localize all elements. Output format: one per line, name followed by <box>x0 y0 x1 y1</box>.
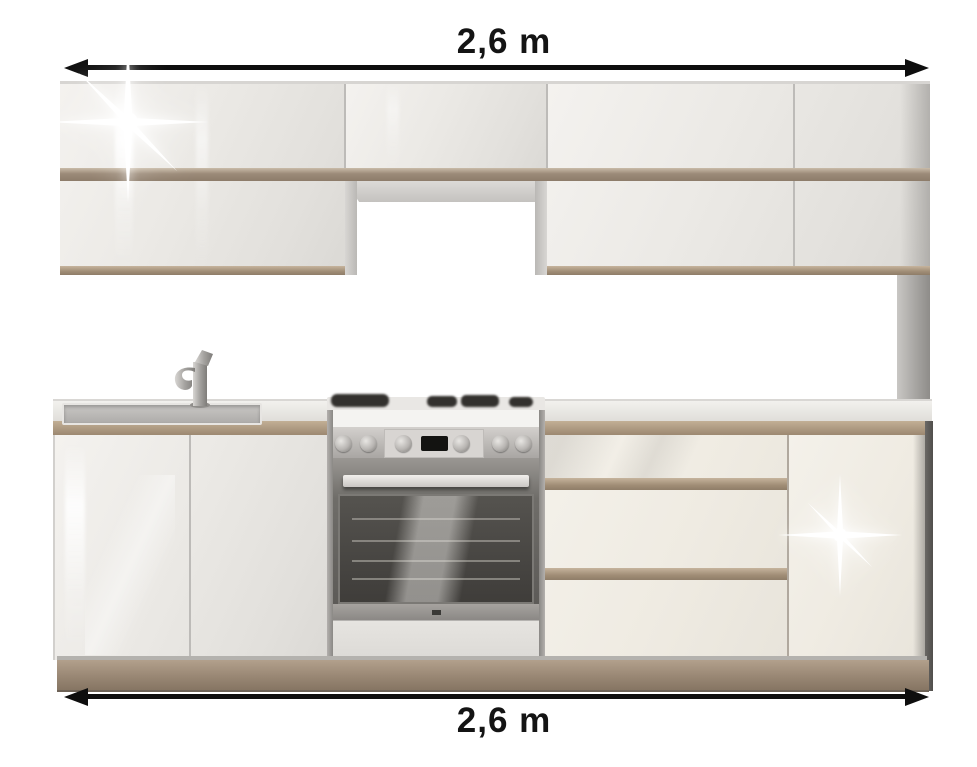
door-gap <box>344 84 346 168</box>
door-gap <box>189 435 191 660</box>
hob-burner-grate <box>509 397 533 407</box>
gloss-reflection <box>387 84 399 168</box>
cooker-top-trim <box>327 410 545 428</box>
brand-logo <box>432 610 441 615</box>
hood-niche-underside <box>345 181 547 202</box>
product-image: 2,6 m <box>0 0 977 767</box>
control-knob <box>395 435 412 452</box>
oven-window <box>338 494 534 604</box>
glass-reflection <box>340 496 532 602</box>
window-reflection <box>85 475 175 655</box>
oven-handle <box>343 475 529 487</box>
hood-niche-left-cheek <box>345 181 357 275</box>
plinth-oak <box>57 660 929 692</box>
wall-cabinet-bottom-edge <box>60 266 345 275</box>
base-drawer-unit <box>545 435 788 660</box>
drawer-gap-oak <box>545 568 788 580</box>
wall-cabinet-middle <box>345 84 547 168</box>
arrowhead-right-icon <box>905 59 929 77</box>
cooker <box>327 392 545 662</box>
hob-burner-grate <box>461 395 499 407</box>
base-cabinet-left-doors <box>53 435 329 660</box>
wall-cabinet-bottom-edge <box>547 266 930 275</box>
hob-burner-grate <box>331 394 389 407</box>
control-knob <box>335 435 352 452</box>
cooker-side <box>327 410 333 662</box>
control-knob <box>360 435 377 452</box>
door-gap <box>546 84 548 168</box>
control-knob <box>492 435 509 452</box>
dimension-line-bottom <box>84 694 908 699</box>
cooker-control-panel <box>327 427 545 458</box>
gloss-reflection <box>65 443 85 653</box>
end-panel-shadow <box>925 421 933 691</box>
sparkle-icon <box>778 473 902 597</box>
oven-bottom-trim <box>327 604 545 620</box>
side-panel-right <box>897 275 930 410</box>
oven-display <box>421 436 448 451</box>
faucet <box>162 348 220 408</box>
drawer-gap-oak <box>545 478 788 490</box>
drawer-reflection <box>545 435 788 478</box>
dimension-label-bottom: 2,6 m <box>66 701 942 741</box>
oven-door <box>327 458 545 620</box>
cabinet-side-shading <box>913 435 925 660</box>
hob-burner-grate <box>427 396 457 407</box>
sparkle-icon <box>46 40 210 204</box>
control-knob <box>515 435 532 452</box>
hood-niche-right-cheek <box>535 181 547 275</box>
control-knob <box>453 435 470 452</box>
